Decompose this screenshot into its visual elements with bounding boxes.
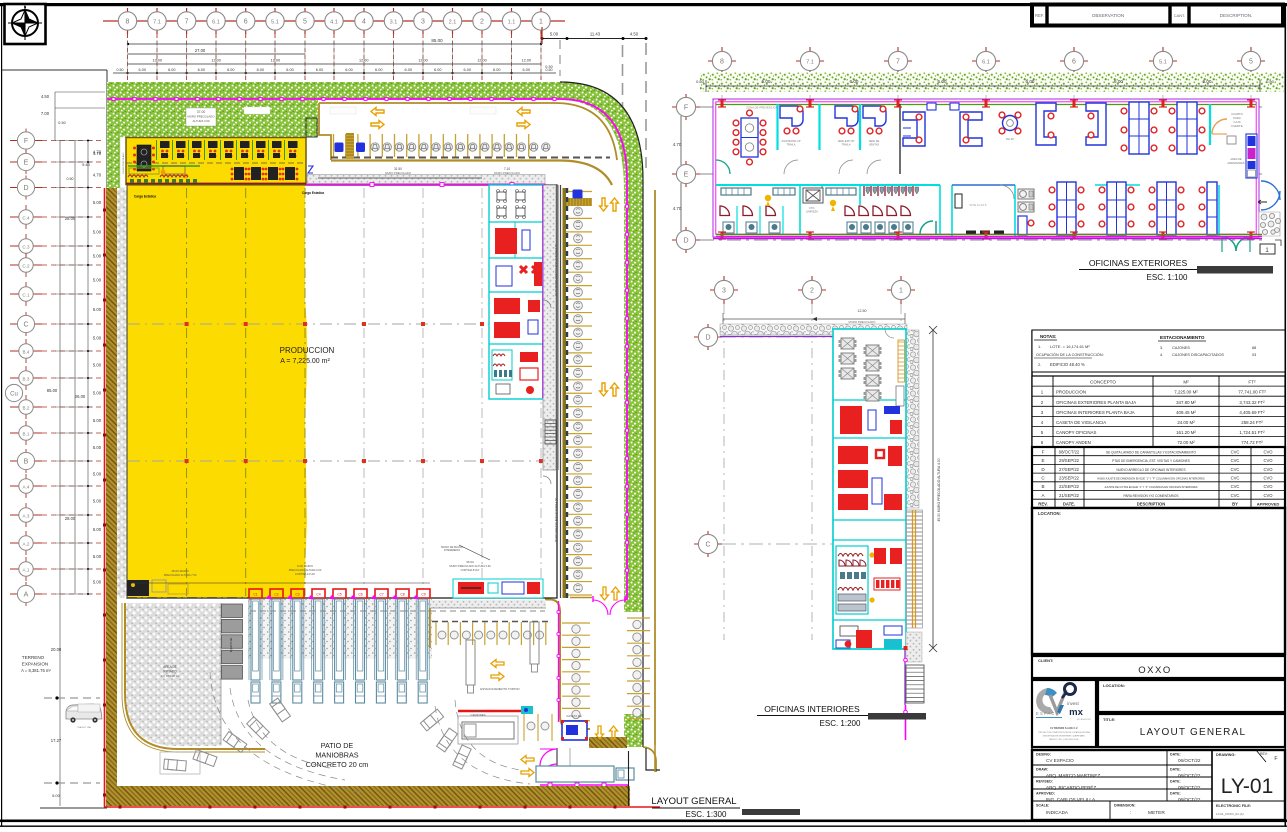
svg-text:C8: C8: [400, 593, 404, 597]
svg-text:APROVED:: APROVED:: [1036, 792, 1055, 796]
svg-text:A.3: A.3: [23, 513, 30, 518]
svg-text:06/OCT/22: 06/OCT/22: [1178, 785, 1201, 790]
svg-text:774.72 FT²: 774.72 FT²: [1241, 440, 1263, 445]
svg-text:6.00: 6.00: [168, 68, 175, 72]
svg-text:CVC: CVC: [1231, 493, 1240, 498]
svg-text:ESTACIONAMIENTO TORTON: ESTACIONAMIENTO TORTON: [480, 687, 519, 691]
svg-text:OBSERVATION: OBSERVATION: [1092, 13, 1124, 18]
svg-text:7: 7: [896, 59, 900, 66]
svg-text:5.00: 5.00: [93, 336, 102, 341]
svg-text:A.2: A.2: [23, 541, 30, 546]
svg-text:CAJONES DISCAPACITADOS: CAJONES DISCAPACITADOS: [1172, 353, 1224, 357]
svg-text:12.00: 12.00: [153, 59, 163, 63]
svg-text:347.80 M²: 347.80 M²: [1176, 400, 1196, 405]
svg-text:PRODUCCION: PRODUCCION: [280, 346, 335, 355]
svg-text:6.1: 6.1: [982, 60, 990, 66]
svg-text:ARQ. RICARDO PERÉZ: ARQ. RICARDO PERÉZ: [1046, 784, 1096, 790]
svg-text:TRANSIT VAN: TRANSIT VAN: [77, 726, 92, 729]
svg-text:LOCATION:: LOCATION:: [1103, 683, 1125, 688]
svg-text:B.1: B.1: [23, 431, 30, 436]
svg-text:MURO PRECOLADO: MURO PRECOLADO: [494, 171, 520, 175]
svg-text:6.00: 6.00: [493, 68, 500, 72]
svg-text:REF.: REF.: [1035, 13, 1044, 18]
svg-text:OFICINAS INTERIORES: OFICINAS INTERIORES: [764, 704, 860, 714]
svg-text:21/SEP/22: 21/SEP/22: [1059, 493, 1080, 498]
svg-text:5.00: 5.00: [93, 363, 102, 368]
svg-text:6.00 MURO: 6.00 MURO: [297, 564, 314, 568]
svg-text:OXXO: OXXO: [1138, 665, 1171, 676]
svg-text:FUERTE: FUERTE: [1231, 124, 1242, 128]
svg-text:EXPANSION: EXPANSION: [22, 662, 48, 667]
svg-text:6.00: 6.00: [345, 68, 352, 72]
svg-text:1.1: 1.1: [508, 20, 516, 26]
svg-text:6.00: 6.00: [1203, 79, 1212, 84]
svg-text:ZONA DE PREVENCION: ZONA DE PREVENCION: [746, 106, 778, 110]
svg-text:23/SEP/22: 23/SEP/22: [1059, 476, 1080, 481]
svg-text:3: 3: [421, 19, 425, 26]
svg-text:6: 6: [244, 19, 248, 26]
svg-text:CV ESPACIO: CV ESPACIO: [1046, 758, 1074, 763]
svg-text:C: C: [705, 542, 710, 549]
svg-text:5: 5: [303, 19, 307, 26]
svg-text:45.50 MURO PRECOLADO ALTURA 4.: 45.50 MURO PRECOLADO ALTURA 4.50: [937, 458, 941, 521]
svg-text:6.00: 6.00: [850, 79, 859, 84]
svg-text:LY-01_OXXO_01 (A): LY-01_OXXO_01 (A): [1216, 812, 1244, 816]
svg-text:SITE A=14.5: SITE A=14.5: [970, 203, 987, 207]
svg-text:CASETA DE: CASETA DE: [566, 714, 582, 718]
svg-text:18.00 MURO: 18.00 MURO: [171, 569, 189, 573]
svg-text:2: 2: [480, 19, 484, 26]
svg-text:9.40: 9.40: [82, 162, 91, 167]
svg-text:C.3: C.3: [22, 244, 30, 249]
svg-text:4,405.69 FT²: 4,405.69 FT²: [1239, 410, 1265, 415]
svg-text:22/SEP/22: 22/SEP/22: [1059, 484, 1080, 489]
svg-text:A.1: A.1: [23, 567, 30, 572]
svg-text:PRODUCCION: PRODUCCION: [1056, 390, 1086, 395]
svg-text:BY: BY: [1232, 502, 1238, 507]
svg-text:6.00: 6.00: [523, 68, 530, 72]
svg-text:OFICINAS EXTERIORES PLANTA BAJ: OFICINAS EXTERIORES PLANTA BAJA: [1056, 400, 1136, 405]
svg-text:AREA DE: AREA DE: [1230, 157, 1242, 161]
svg-text:EQUIPO DE: EQUIPO DE: [229, 638, 233, 653]
svg-text:7.1: 7.1: [806, 60, 814, 66]
svg-text:INDICADA: INDICADA: [1046, 810, 1069, 815]
svg-text:FT²: FT²: [1248, 380, 1256, 385]
svg-text:2: 2: [810, 288, 814, 295]
svg-text:0.50: 0.50: [67, 177, 74, 181]
svg-text:ESC. 1:200: ESC. 1:200: [820, 719, 861, 728]
svg-text:7.1: 7.1: [153, 20, 161, 26]
svg-text:C.2: C.2: [22, 263, 30, 268]
svg-text:5.00: 5.00: [93, 554, 102, 559]
svg-text:E S P A C I I: E S P A C I I: [1036, 711, 1059, 716]
svg-text:5: 5: [1249, 59, 1253, 66]
svg-text:06/OCT/22: 06/OCT/22: [1178, 773, 1201, 778]
svg-text:MANIOBRAS: MANIOBRAS: [315, 751, 358, 760]
svg-text:CV BRANDS S.A.DE C.V.: CV BRANDS S.A.DE C.V.: [1050, 727, 1078, 730]
svg-text:0.50: 0.50: [545, 65, 552, 69]
svg-text:5.00: 5.00: [93, 527, 102, 532]
svg-text:6.00: 6.00: [434, 68, 441, 72]
svg-text:CTO.: CTO.: [809, 206, 815, 210]
svg-text:PROYECTOS,CONSTRUCCION DE LOCA: PROYECTOS,CONSTRUCCION DE LOCALES,OFICIN…: [1038, 731, 1090, 734]
svg-text:4.70: 4.70: [93, 173, 102, 178]
svg-text:5.00: 5.00: [93, 499, 102, 504]
svg-text:DESCRIPTION.: DESCRIPTION.: [1220, 13, 1253, 18]
svg-text:CVC: CVC: [1231, 484, 1240, 489]
svg-text:CLIENT:: CLIENT:: [1038, 658, 1053, 663]
svg-text:06/OCT/22: 06/OCT/22: [1178, 797, 1201, 802]
svg-text:A = 7,225.00 m²: A = 7,225.00 m²: [280, 358, 330, 365]
svg-text:VENTAS: VENTAS: [869, 143, 879, 147]
svg-text:45.50 MURO PRECOLADO ALTURA 4.: 45.50 MURO PRECOLADO ALTURA 4.50: [554, 243, 558, 296]
svg-text::: :: [1130, 810, 1131, 815]
svg-text:DESCRIPTION: DESCRIPTION: [1137, 502, 1166, 507]
svg-text:CONCEPTO: CONCEPTO: [1090, 380, 1116, 385]
svg-text:6.00: 6.00: [375, 68, 382, 72]
svg-text:6.00: 6.00: [316, 68, 323, 72]
svg-text:PRECOLADO ALTURA 6.00: PRECOLADO ALTURA 6.00: [289, 568, 322, 572]
svg-text:6.00: 6.00: [257, 68, 264, 72]
svg-text:DATE.: DATE.: [1063, 502, 1075, 507]
svg-text:4.50: 4.50: [41, 94, 50, 99]
svg-text:invest: invest: [1067, 701, 1079, 706]
svg-text:A = 8,381.75 m²: A = 8,381.75 m²: [21, 668, 51, 673]
svg-text:CVO: CVO: [1263, 493, 1273, 498]
svg-text:5.00: 5.00: [93, 200, 102, 205]
svg-text:C.4: C.4: [22, 215, 30, 220]
svg-text:F: F: [684, 105, 688, 112]
svg-text:MC ASESORY: MC ASESORY: [1077, 718, 1092, 721]
svg-text:3.1: 3.1: [390, 20, 398, 26]
svg-text:2.: 2.: [1038, 362, 1041, 367]
svg-text:REV.: REV.: [1038, 502, 1047, 507]
svg-text:PARA REVISION Y/O COMENTARIOS: PARA REVISION Y/O COMENTARIOS: [1123, 494, 1178, 498]
svg-text:5.1: 5.1: [271, 20, 279, 26]
svg-text:F: F: [1042, 449, 1045, 454]
svg-text:6.00: 6.00: [198, 68, 205, 72]
svg-text:6.00: 6.00: [139, 68, 146, 72]
svg-text:409.45 M²: 409.45 M²: [1176, 410, 1196, 415]
svg-text:4.50: 4.50: [630, 32, 639, 37]
svg-text:EDIFICIO 48.40 %: EDIFICIO 48.40 %: [1050, 362, 1085, 367]
svg-text:CAMIONES: CAMIONES: [471, 713, 486, 717]
svg-text:AJUSTE DE COTAS EN EJE “1” Y “: AJUSTE DE COTAS EN EJE “1” Y “F” COLUMNA…: [1104, 485, 1197, 489]
svg-text:4.1: 4.1: [330, 20, 338, 26]
svg-text:6.00: 6.00: [405, 68, 412, 72]
svg-text:DESING:: DESING:: [1036, 753, 1051, 757]
svg-text:6.00: 6.00: [464, 68, 471, 72]
svg-text:5.00: 5.00: [93, 445, 102, 450]
svg-text:12.50: 12.50: [858, 309, 867, 313]
svg-text:5.00: 5.00: [550, 32, 559, 37]
svg-text:CVC: CVC: [1231, 449, 1240, 454]
svg-text:1,724.51 FT²: 1,724.51 FT²: [1239, 430, 1265, 435]
svg-text:CANOPY OFICINAS: CANOPY OFICINAS: [1056, 430, 1096, 435]
svg-text:OCUPACIÓN DE LA CONSTRUCCIÓN:: OCUPACIÓN DE LA CONSTRUCCIÓN:: [1036, 352, 1104, 357]
svg-text:TITLE:: TITLE:: [1103, 717, 1115, 722]
svg-text:ALTURA 3.00: ALTURA 3.00: [193, 119, 210, 123]
svg-text:A = 970.00 m²: A = 970.00 m²: [161, 674, 180, 678]
svg-text:A: A: [24, 591, 29, 598]
svg-text:DATE:: DATE:: [1170, 753, 1181, 757]
svg-text:ESC. 1:300: ESC. 1:300: [686, 810, 727, 819]
svg-text:RH 4P: RH 4P: [1006, 137, 1014, 141]
svg-text:6.1: 6.1: [212, 20, 220, 26]
svg-text:CVC: CVC: [1231, 458, 1240, 463]
svg-text:OFICINAS INTERIORES PLANTA BAJ: OFICINAS INTERIORES PLANTA BAJA: [1056, 410, 1135, 415]
svg-text:5.1: 5.1: [1159, 60, 1167, 66]
svg-text:28.00: 28.00: [65, 216, 76, 221]
svg-text:5.00: 5.00: [93, 418, 102, 423]
svg-text:TRAILA: TRAILA: [786, 143, 795, 147]
svg-text:PATIO DE: PATIO DE: [321, 741, 354, 750]
svg-text:C9: C9: [421, 593, 425, 597]
svg-text:5.00: 5.00: [93, 230, 102, 235]
svg-text:INDUSTRIAL EN MONTERREY, QUERE: INDUSTRIAL EN MONTERREY, QUERETARO: [1043, 735, 1085, 738]
svg-text:DIMENSION:: DIMENSION:: [1114, 804, 1136, 808]
svg-text:LIMPIEZA: LIMPIEZA: [806, 210, 818, 214]
svg-text:CVC: CVC: [1231, 476, 1240, 481]
svg-text:36.00: 36.00: [466, 560, 474, 564]
svg-text:F: F: [1274, 756, 1277, 762]
svg-text:4.70: 4.70: [93, 151, 102, 156]
svg-text:24.00 M²: 24.00 M²: [1177, 420, 1195, 425]
svg-text:SE QUITA LAVADO DE CANASTILLAS: SE QUITA LAVADO DE CANASTILLAS Y ESTACIO…: [1106, 450, 1196, 454]
svg-text:31.50: 31.50: [394, 167, 402, 171]
svg-text:29/SEP/22: 29/SEP/22: [1059, 458, 1080, 463]
svg-text:AREA DE: AREA DE: [163, 665, 177, 669]
svg-text:C4: C4: [316, 593, 320, 597]
svg-text:SCALE:: SCALE:: [1036, 804, 1049, 808]
svg-text:CVO: CVO: [1263, 476, 1273, 481]
svg-text:C.1: C.1: [22, 292, 30, 297]
svg-text:6: 6: [1072, 59, 1076, 66]
svg-text:CASETA DE VIGILANCIA: CASETA DE VIGILANCIA: [1056, 420, 1106, 425]
svg-text:DATE:: DATE:: [1170, 780, 1181, 784]
svg-text:E: E: [24, 159, 29, 166]
svg-text:7.00: 7.00: [41, 111, 50, 116]
svg-text:DATE:: DATE:: [1170, 768, 1181, 772]
svg-text:D: D: [23, 185, 28, 192]
svg-text:METER: METER: [1148, 810, 1165, 816]
svg-text:4.70: 4.70: [673, 206, 682, 211]
svg-text:APPROVED: APPROVED: [1257, 502, 1280, 507]
svg-text:6.00: 6.00: [1114, 79, 1123, 84]
svg-text:77,741.00 FT²: 77,741.00 FT²: [1238, 390, 1266, 395]
svg-text:27/SEP/22: 27/SEP/22: [1059, 467, 1080, 472]
svg-text:258.24 FT²: 258.24 FT²: [1241, 420, 1263, 425]
svg-text:B: B: [1041, 484, 1044, 489]
svg-text:88: 88: [1252, 346, 1256, 350]
svg-text:DRAW:: DRAW:: [1036, 768, 1048, 772]
svg-text:LAYOUT GENERAL: LAYOUT GENERAL: [651, 796, 736, 807]
svg-text:LOTE. = 16,174.61 M²: LOTE. = 16,174.61 M²: [1050, 344, 1090, 349]
svg-text:C7: C7: [379, 593, 383, 597]
svg-text:MURO PRECOLADO: MURO PRECOLADO: [188, 115, 216, 119]
svg-text:6.00: 6.00: [938, 79, 947, 84]
svg-text:0.50: 0.50: [117, 68, 124, 72]
svg-text:6.00: 6.00: [1026, 79, 1035, 84]
svg-text:0.50: 0.50: [58, 121, 65, 125]
svg-text:JEFE DE: JEFE DE: [869, 139, 880, 143]
svg-text:DRAWING:: DRAWING:: [1216, 753, 1236, 757]
svg-text:C3: C3: [295, 593, 299, 597]
svg-text:1.: 1.: [1038, 344, 1041, 349]
svg-text:ESTACIONAMIENTO: ESTACIONAMIENTO: [1160, 335, 1205, 340]
svg-text:1: 1: [539, 19, 543, 26]
svg-text:3.: 3.: [1160, 346, 1163, 350]
svg-text:6.00: 6.00: [227, 68, 234, 72]
svg-text:CORTINA 12'x10': CORTINA 12'x10': [295, 572, 316, 576]
svg-text:72.00 M²: 72.00 M²: [1177, 440, 1195, 445]
svg-text:TERRENO: TERRENO: [22, 655, 45, 660]
svg-text:12.00: 12.00: [271, 59, 281, 63]
svg-text:6.00: 6.00: [762, 79, 771, 84]
svg-text:MURO PRECOLADO: MURO PRECOLADO: [122, 152, 125, 173]
svg-text:5.00: 5.00: [52, 793, 61, 798]
svg-text:CVO: CVO: [1263, 467, 1273, 472]
svg-text:PRECOLADO ALTURA 7.50: PRECOLADO ALTURA 7.50: [164, 573, 197, 577]
svg-text:CAJONES: CAJONES: [1172, 346, 1190, 350]
svg-text:37.00: 37.00: [197, 110, 206, 114]
svg-text:A.4: A.4: [23, 484, 30, 489]
svg-text:4: 4: [362, 19, 366, 26]
svg-text:20.00: 20.00: [51, 647, 62, 652]
svg-text:LAYOUT GENERAL: LAYOUT GENERAL: [1140, 727, 1246, 738]
svg-text:3,743.32 FT²: 3,743.32 FT²: [1239, 400, 1265, 405]
svg-text:B.2: B.2: [23, 405, 30, 410]
svg-text:ING. CARLOS VELILLA: ING. CARLOS VELILLA: [1046, 797, 1096, 802]
svg-text:85.00: 85.00: [431, 38, 443, 43]
svg-text:5.00: 5.00: [93, 472, 102, 477]
svg-text:CVO: CVO: [1263, 484, 1273, 489]
svg-text:28.00: 28.00: [65, 516, 76, 521]
svg-text:MEXICO. TEL. (+52) 8181-15-60: MEXICO. TEL. (+52) 8181-15-60: [1049, 739, 1079, 741]
svg-text:B: B: [24, 458, 29, 465]
svg-text:5.00: 5.00: [93, 254, 102, 259]
svg-text:85.00: 85.00: [47, 388, 58, 393]
svg-text:4.70: 4.70: [673, 142, 682, 147]
svg-text:06/OCT/22: 06/OCT/22: [1178, 758, 1201, 763]
svg-text:C6: C6: [358, 593, 362, 597]
svg-text:CORTINA 8'x10': CORTINA 8'x10': [461, 568, 480, 572]
svg-text:12.00: 12.00: [521, 59, 531, 63]
svg-text:B.4: B.4: [23, 349, 30, 354]
svg-text:D: D: [683, 238, 688, 245]
svg-text:11.43: 11.43: [590, 32, 601, 37]
svg-text:3: 3: [722, 288, 726, 295]
svg-text:CVC: CVC: [1231, 467, 1240, 472]
svg-text:MURO PRECOLADO ALTURA 3.60: MURO PRECOLADO ALTURA 3.60: [449, 564, 491, 568]
svg-text:7.10: 7.10: [504, 167, 510, 171]
svg-text:C5: C5: [337, 593, 341, 597]
svg-text:161.20 M²: 161.20 M²: [1176, 430, 1196, 435]
svg-text:CVO: CVO: [1263, 449, 1273, 454]
svg-text:B.3: B.3: [23, 376, 30, 381]
svg-text:OFICINAS EXTERIORES: OFICINAS EXTERIORES: [1089, 258, 1188, 268]
svg-text:mx: mx: [1069, 707, 1083, 718]
svg-text:2.1: 2.1: [449, 20, 457, 26]
svg-text:03: 03: [1252, 353, 1256, 357]
svg-text:08/OCT/22: 08/OCT/22: [1059, 449, 1080, 454]
svg-text:D: D: [705, 335, 710, 342]
svg-text:ASISTENTE OP: ASISTENTE OP: [782, 139, 801, 143]
svg-text:Cu: Cu: [10, 391, 18, 397]
svg-text:DATE:: DATE:: [1170, 792, 1181, 796]
svg-text:6.00: 6.00: [286, 68, 293, 72]
svg-text:7,225.00 M²: 7,225.00 M²: [1174, 390, 1198, 395]
svg-text:CVO: CVO: [1263, 458, 1273, 463]
svg-text:Carga Estatica: Carga Estatica: [134, 195, 156, 199]
svg-text:CANT.: CANT.: [1174, 13, 1186, 18]
svg-text:NUEVO ARREGLO DE OFICINAS INTE: NUEVO ARREGLO DE OFICINAS INTERIORES: [1116, 468, 1185, 472]
svg-text:LOCATION:: LOCATION:: [1038, 511, 1061, 516]
svg-text:27.00: 27.00: [195, 48, 206, 53]
svg-text:C: C: [23, 321, 28, 328]
svg-text:MURO PRECOLADO ALTURA 4.50: MURO PRECOLADO ALTURA 4.50: [554, 497, 558, 542]
svg-text:8: 8: [720, 59, 724, 66]
svg-text:5.00: 5.00: [93, 580, 102, 585]
svg-text:F: F: [24, 138, 28, 145]
svg-text:7: 7: [185, 19, 189, 26]
svg-text:MURO PRECOLADO: MURO PRECOLADO: [385, 171, 411, 175]
svg-text:C2: C2: [274, 593, 278, 597]
svg-text:ESC. 1:100: ESC. 1:100: [1147, 273, 1188, 282]
svg-text:REV:: REV:: [1260, 752, 1268, 756]
svg-text:1: 1: [899, 288, 903, 295]
svg-text:C1: C1: [253, 593, 257, 597]
svg-text:0.50: 0.50: [696, 79, 705, 84]
svg-text:CANOPY ANDEN: CANOPY ANDEN: [1056, 440, 1091, 445]
svg-text:JEFE EXP OP: JEFE EXP OP: [838, 139, 855, 143]
svg-text:ELECTRONIC FILE:: ELECTRONIC FILE:: [1216, 804, 1251, 808]
svg-text:5.00: 5.00: [93, 391, 102, 396]
svg-text:ARQ. MARCO MARTINEZ: ARQ. MARCO MARTINEZ: [1046, 773, 1100, 778]
svg-text:8: 8: [126, 19, 130, 26]
svg-text:RIPIADO: RIPIADO: [163, 670, 177, 674]
svg-text:4.: 4.: [1160, 353, 1163, 357]
svg-text:0.50: 0.50: [1266, 79, 1275, 84]
svg-text:INTERMEDIO: INTERMEDIO: [444, 548, 460, 552]
svg-text:5.00: 5.00: [93, 278, 102, 283]
svg-text:5.00: 5.00: [93, 307, 102, 312]
svg-text:26.00: 26.00: [75, 394, 86, 399]
svg-text:PTAS DE EMERGENCIA, EST. VISIT: PTAS DE EMERGENCIA, EST. VISITAS Y CAMIO…: [1112, 459, 1190, 463]
svg-text:17.27: 17.27: [51, 738, 62, 743]
svg-text:AMENIDADES: AMENIDADES: [1227, 161, 1244, 165]
svg-text:LY-01: LY-01: [1221, 775, 1274, 798]
svg-text:TRAILA: TRAILA: [841, 143, 850, 147]
svg-text:Carga Estatica: Carga Estatica: [302, 191, 324, 195]
svg-text:NOTAS:: NOTAS:: [1040, 334, 1057, 339]
svg-text:E: E: [1041, 458, 1044, 463]
svg-text:E: E: [684, 172, 689, 179]
svg-text:HUBO AJUSTE DE DIMENSION EN EJ: HUBO AJUSTE DE DIMENSION EN EJE “1” Y “F…: [1097, 477, 1204, 481]
svg-text:REVISED:: REVISED:: [1036, 780, 1053, 784]
svg-text:M²: M²: [1183, 380, 1189, 385]
